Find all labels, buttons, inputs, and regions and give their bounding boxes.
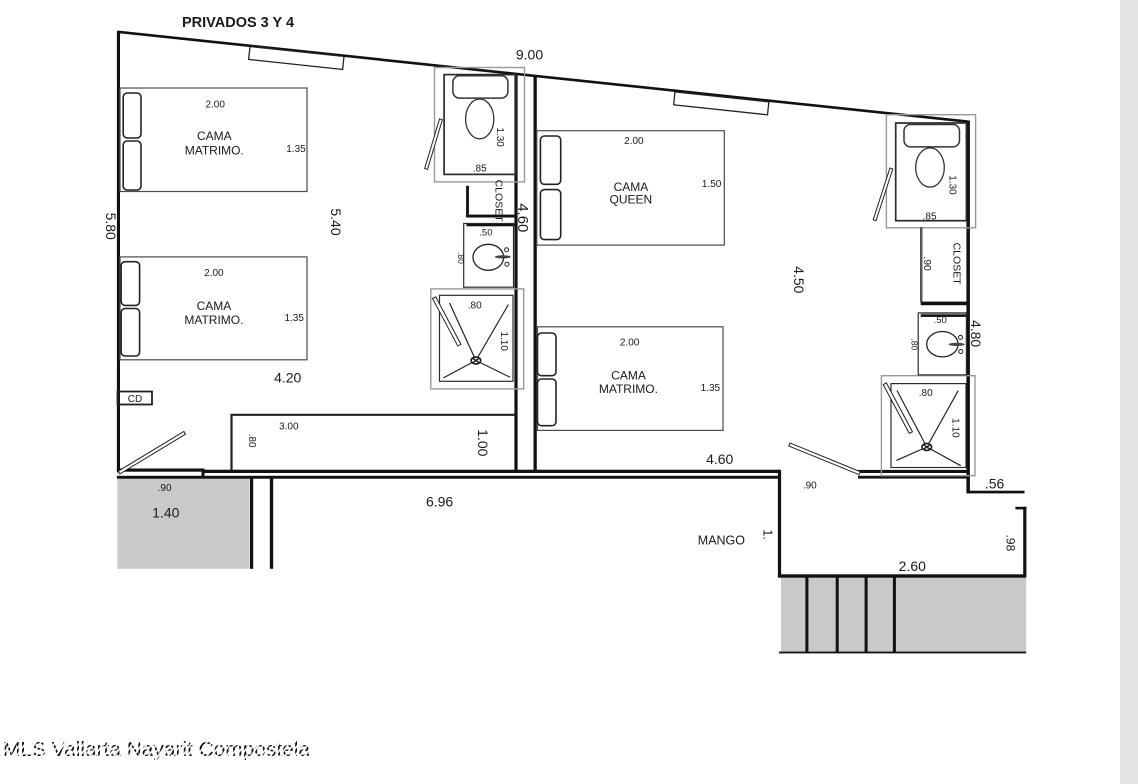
svg-text:2.00: 2.00: [205, 99, 225, 110]
svg-text:4.60: 4.60: [514, 203, 531, 232]
svg-text:.80: .80: [456, 252, 466, 264]
svg-text:CAMA: CAMA: [197, 129, 232, 143]
svg-text:CAMA: CAMA: [197, 299, 232, 313]
svg-text:.98: .98: [1003, 535, 1017, 552]
svg-text:MATRIMO.: MATRIMO.: [185, 143, 244, 157]
svg-text:.56: .56: [985, 475, 1005, 491]
svg-text:4.80: 4.80: [968, 320, 984, 347]
svg-text:.90: .90: [803, 480, 817, 491]
svg-text:.80: .80: [909, 338, 919, 350]
svg-text:.90: .90: [921, 256, 933, 271]
svg-text:9.00: 9.00: [516, 46, 543, 62]
svg-text:CLOSET: CLOSET: [950, 243, 962, 286]
svg-text:1.: 1.: [760, 529, 774, 539]
svg-text:.90: .90: [158, 483, 172, 494]
svg-text:MATRIMO.: MATRIMO.: [599, 382, 658, 396]
svg-text:2.00: 2.00: [620, 338, 640, 349]
svg-text:2.00: 2.00: [204, 268, 224, 279]
svg-text:1.35: 1.35: [701, 383, 721, 394]
svg-text:2.00: 2.00: [624, 136, 644, 147]
svg-text:1.30: 1.30: [946, 175, 957, 195]
svg-text:5.40: 5.40: [328, 208, 344, 235]
svg-text:.80: .80: [246, 434, 257, 448]
svg-text:6.96: 6.96: [426, 494, 453, 510]
svg-text:.85: .85: [923, 212, 937, 223]
svg-text:1.30: 1.30: [494, 127, 505, 147]
svg-text:.85: .85: [473, 163, 487, 174]
svg-text:1.00: 1.00: [475, 429, 491, 456]
svg-text:4.60: 4.60: [706, 451, 733, 467]
svg-text:CLOSET: CLOSET: [492, 180, 504, 223]
svg-text:CAMA: CAMA: [611, 368, 646, 382]
svg-text:1.50: 1.50: [702, 179, 722, 190]
svg-text:MLS Vallarta Nayarit Compostel: MLS Vallarta Nayarit Compostela: [3, 738, 311, 761]
svg-text:QUEEN: QUEEN: [610, 193, 653, 207]
svg-text:3.00: 3.00: [279, 422, 299, 433]
svg-text:PRIVADOS 3 Y 4: PRIVADOS 3 Y 4: [182, 15, 294, 31]
svg-text:4.20: 4.20: [274, 369, 301, 385]
svg-text:.80: .80: [468, 301, 482, 312]
svg-text:2.60: 2.60: [899, 558, 926, 574]
svg-text:5.80: 5.80: [103, 213, 119, 240]
svg-text:CAMA: CAMA: [614, 180, 649, 194]
svg-text:.80: .80: [919, 388, 933, 399]
svg-text:CD: CD: [128, 394, 142, 405]
svg-text:1.35: 1.35: [284, 313, 304, 324]
svg-text:.50: .50: [934, 315, 947, 326]
svg-text:.50: .50: [479, 227, 492, 238]
svg-text:1.10: 1.10: [498, 331, 509, 351]
svg-text:1.10: 1.10: [950, 418, 961, 438]
svg-text:MATRIMO.: MATRIMO.: [184, 313, 243, 327]
svg-text:1.35: 1.35: [286, 144, 306, 155]
svg-text:MANGO: MANGO: [698, 533, 746, 547]
svg-text:4.50: 4.50: [791, 266, 807, 293]
svg-text:1.40: 1.40: [152, 505, 179, 521]
